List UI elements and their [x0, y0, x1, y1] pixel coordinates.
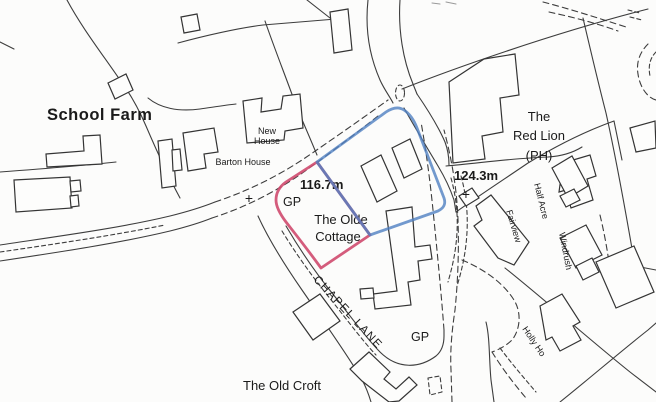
label-spot-height-east: 124.3m [454, 168, 498, 183]
label-new-house-line2: House [254, 136, 280, 146]
label-barton-house: Barton House [215, 157, 270, 167]
survey-cross-icon: + [462, 186, 470, 202]
survey-cross-icon: + [245, 190, 253, 206]
label-olde-cottage-line2: Cottage [315, 229, 361, 244]
label-red-lion-line2: Red Lion [513, 128, 565, 143]
label-school-farm: School Farm [47, 106, 152, 124]
label-red-lion-line3: (PH) [526, 148, 553, 163]
map-viewport: School Farm New House Barton House 116.7… [0, 0, 656, 402]
label-guide-post-south: GP [411, 330, 429, 344]
label-guide-post-west: GP [283, 195, 301, 209]
label-old-croft: The Old Croft [243, 378, 321, 393]
label-new-house-line1: New [258, 126, 277, 136]
map-canvas: School Farm New House Barton House 116.7… [0, 0, 656, 402]
label-red-lion-line1: The [528, 109, 550, 124]
